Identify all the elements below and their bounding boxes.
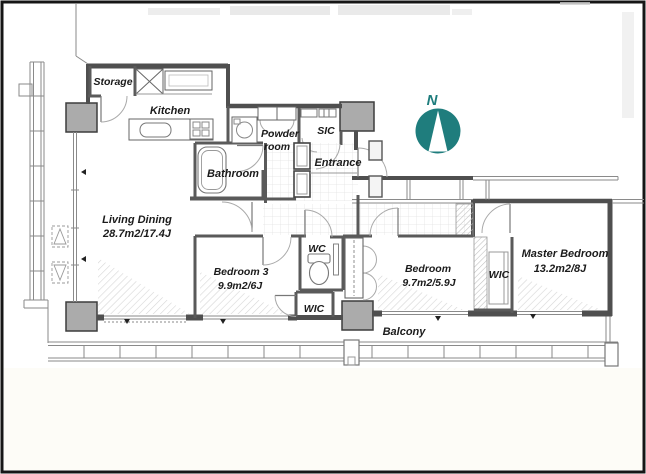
powder-cabinets (258, 107, 296, 120)
floor-plan-page: Storage Kitchen Powder room Bathroom SIC… (0, 0, 646, 474)
column (66, 103, 97, 132)
sic-shelves (301, 109, 336, 117)
room-label-bedroom2: Bedroom (405, 263, 451, 275)
compass-north-label: N (427, 92, 439, 109)
room-label-entrance: Entrance (314, 157, 361, 169)
kitchen-sink-icon (140, 123, 171, 137)
room-area-master-bedroom: 13.2m2/8J (534, 263, 587, 275)
room-label-wic-hall: WIC (304, 303, 325, 315)
room-label-living-dining: Living Dining (102, 214, 172, 226)
railing-center-post (344, 340, 359, 365)
kitchen-counter (129, 119, 213, 140)
room-label-bathroom: Bathroom (207, 168, 259, 180)
linen-closet (345, 238, 363, 298)
room-area-living-dining: 28.7m2/17.4J (102, 228, 172, 240)
column (340, 102, 374, 131)
room-label-wc: WC (308, 243, 326, 255)
room-label-bedroom3: Bedroom 3 (214, 266, 269, 278)
floor-plan-drawing: Storage Kitchen Powder room Bathroom SIC… (0, 0, 646, 474)
room-label-powder-2: room (264, 141, 290, 153)
column (66, 302, 97, 331)
room-label-balcony: Balcony (383, 326, 427, 338)
upper-cabinet-icon (136, 69, 212, 94)
column (342, 301, 373, 330)
room-label-powder-1: Powder (261, 128, 300, 140)
room-label-master-bedroom: Master Bedroom (522, 248, 609, 260)
room-area-bedroom3: 9.9m2/6J (218, 280, 264, 292)
room-area-bedroom2: 9.7m2/5.9J (402, 277, 456, 289)
railing-end-post (605, 343, 618, 366)
washing-machine-icon (232, 117, 257, 143)
room-label-kitchen: Kitchen (150, 105, 191, 117)
blank-paper-area (4, 368, 642, 470)
room-label-sic: SIC (317, 125, 335, 137)
room-label-wic-master: WIC (489, 269, 510, 281)
room-label-storage: Storage (93, 76, 132, 88)
